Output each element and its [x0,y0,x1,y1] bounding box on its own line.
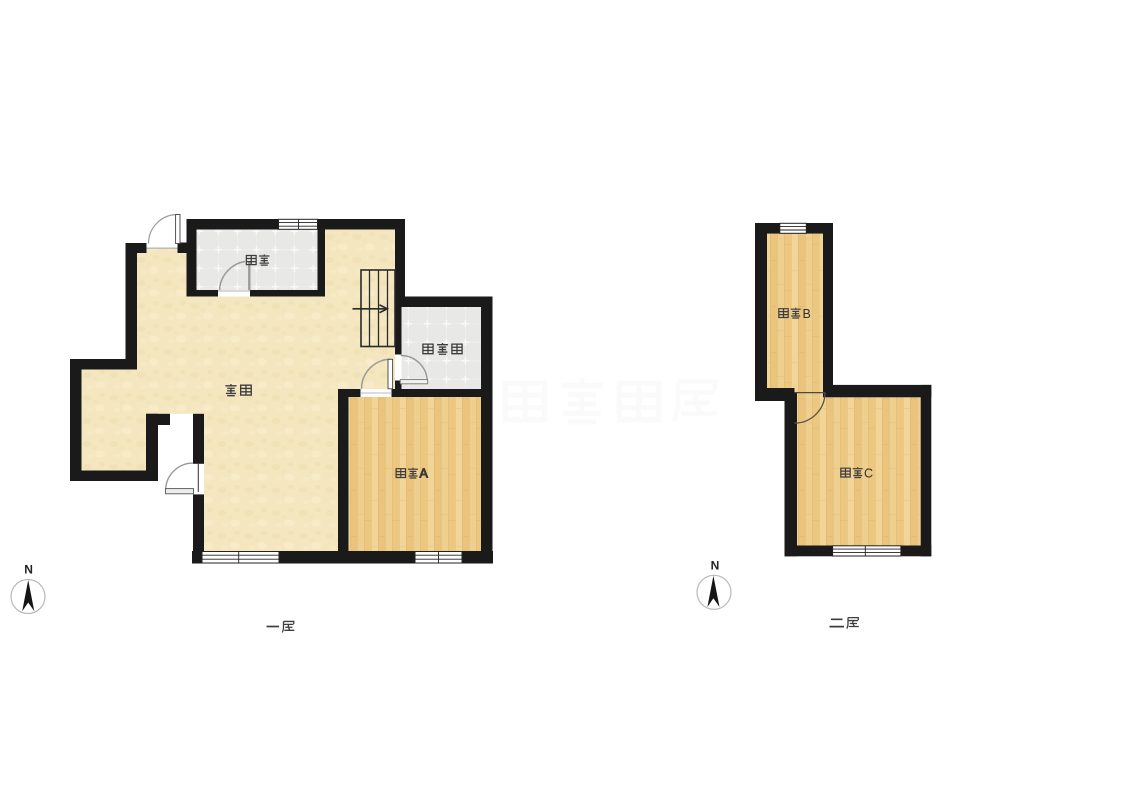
svg-text:N: N [24,563,33,577]
svg-text:N: N [711,559,720,573]
svg-text:C: C [864,466,873,480]
svg-text:A: A [420,467,429,481]
svg-text:B: B [803,307,811,321]
